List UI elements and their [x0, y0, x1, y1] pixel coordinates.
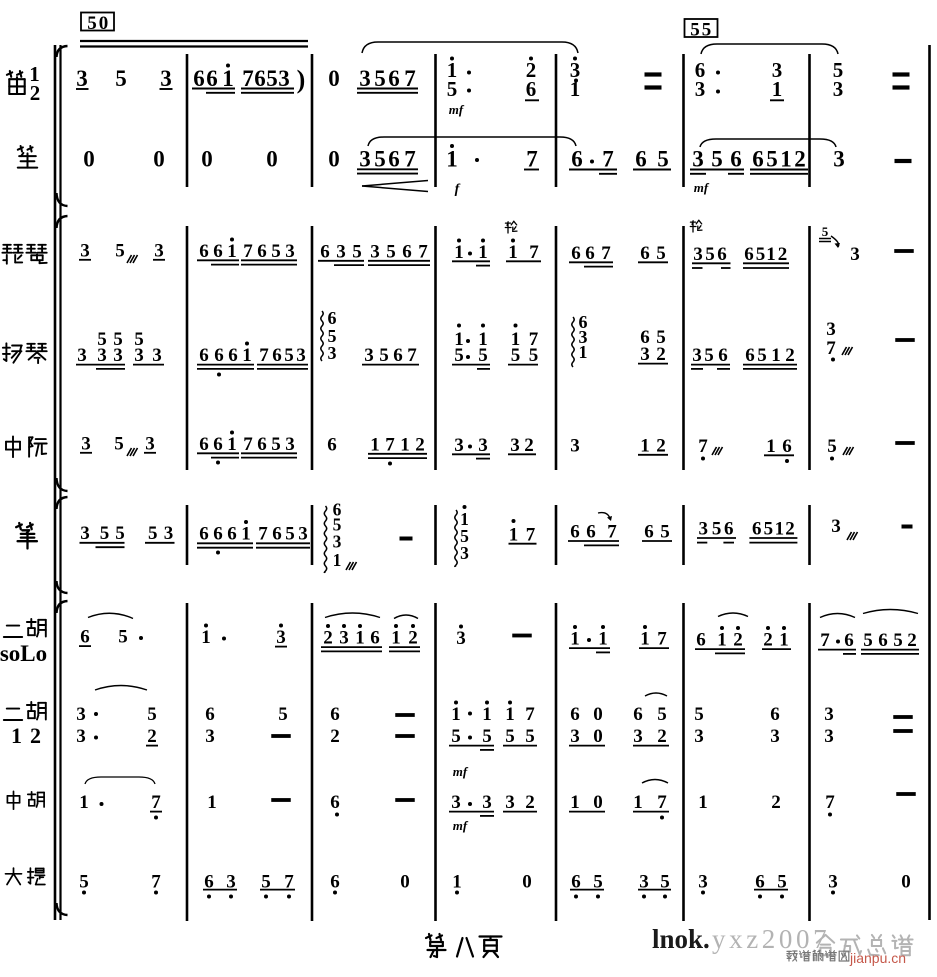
- svg-text:6: 6: [586, 522, 596, 543]
- svg-text:2: 2: [525, 792, 535, 813]
- svg-text:5: 5: [115, 66, 127, 91]
- svg-text:7: 7: [259, 345, 269, 366]
- svg-text:1: 1: [333, 550, 342, 570]
- svg-text:3: 3: [694, 726, 704, 747]
- svg-text:5: 5: [757, 345, 767, 366]
- svg-text:1: 1: [579, 342, 588, 362]
- svg-text:1: 1: [505, 704, 515, 725]
- svg-text:soLo: soLo: [0, 641, 47, 666]
- svg-text:3: 3: [826, 319, 836, 340]
- svg-text:6: 6: [782, 436, 792, 457]
- svg-text:6: 6: [80, 627, 90, 648]
- svg-text:6: 6: [388, 66, 400, 91]
- svg-text:5: 5: [822, 224, 829, 239]
- svg-text:6: 6: [571, 243, 581, 264]
- svg-text:6: 6: [570, 522, 580, 543]
- svg-text:3: 3: [451, 792, 461, 813]
- svg-text:2: 2: [794, 147, 806, 172]
- svg-text:3: 3: [693, 244, 703, 265]
- svg-text:3: 3: [76, 726, 86, 747]
- svg-text:6: 6: [213, 434, 223, 455]
- svg-text:6: 6: [199, 524, 209, 545]
- svg-text:0: 0: [266, 147, 278, 172]
- svg-text:3: 3: [76, 66, 88, 91]
- svg-text:3: 3: [298, 524, 308, 545]
- svg-text:6: 6: [199, 434, 209, 455]
- svg-text:6: 6: [770, 704, 780, 725]
- svg-text:5: 5: [756, 244, 766, 265]
- svg-text:2: 2: [408, 628, 418, 649]
- svg-text:6: 6: [330, 704, 340, 725]
- svg-text:2: 2: [763, 630, 773, 651]
- svg-text:6: 6: [402, 242, 412, 263]
- svg-text:5: 5: [374, 66, 386, 91]
- svg-text:7: 7: [526, 147, 538, 172]
- svg-text:7: 7: [385, 435, 395, 456]
- svg-text:6: 6: [696, 630, 706, 651]
- svg-text:7: 7: [407, 345, 417, 366]
- svg-text:5: 5: [379, 345, 389, 366]
- svg-text:7: 7: [526, 525, 536, 546]
- svg-text:6: 6: [227, 524, 237, 545]
- svg-text:0: 0: [593, 704, 603, 725]
- svg-text:5: 5: [266, 66, 278, 91]
- svg-text:3: 3: [454, 435, 464, 456]
- svg-text:5: 5: [656, 243, 666, 264]
- svg-text:1: 1: [509, 525, 519, 546]
- svg-text:6: 6: [214, 345, 224, 366]
- svg-text:6: 6: [752, 519, 762, 540]
- svg-text:lnok.: lnok.: [652, 924, 710, 954]
- svg-text:6: 6: [330, 872, 340, 893]
- svg-text:3: 3: [456, 628, 466, 649]
- svg-text:5: 5: [374, 147, 386, 172]
- svg-text:3: 3: [770, 726, 780, 747]
- svg-text:mf: mf: [694, 180, 710, 195]
- svg-text:6: 6: [370, 628, 380, 649]
- svg-text:3: 3: [285, 241, 295, 262]
- svg-text:5: 5: [827, 436, 837, 457]
- svg-text:3: 3: [278, 66, 290, 91]
- svg-text:1: 1: [640, 436, 650, 457]
- svg-text:3: 3: [359, 147, 371, 172]
- svg-text:3: 3: [478, 435, 488, 456]
- svg-text:6: 6: [752, 147, 764, 172]
- svg-text:1: 1: [201, 627, 211, 648]
- svg-text:3: 3: [570, 726, 580, 747]
- svg-text:3: 3: [828, 872, 838, 893]
- svg-text:5: 5: [511, 345, 521, 366]
- svg-text:5: 5: [79, 872, 89, 893]
- svg-text:7: 7: [698, 436, 708, 457]
- svg-text:6: 6: [320, 242, 330, 263]
- svg-text:6: 6: [730, 147, 742, 172]
- svg-text:5: 5: [451, 726, 461, 747]
- svg-text:7: 7: [151, 872, 161, 893]
- svg-text:1: 1: [570, 629, 580, 650]
- svg-text:5: 5: [529, 345, 539, 366]
- svg-text:1: 1: [207, 792, 217, 813]
- svg-text:1: 1: [508, 242, 518, 263]
- svg-text:7: 7: [529, 242, 539, 263]
- svg-text:0: 0: [201, 147, 213, 172]
- svg-text:5: 5: [705, 244, 715, 265]
- svg-text:3: 3: [510, 435, 520, 456]
- svg-text:5: 5: [87, 13, 97, 34]
- svg-text:3: 3: [333, 532, 342, 552]
- svg-text:3: 3: [640, 344, 650, 365]
- svg-text:1: 1: [451, 704, 461, 725]
- svg-text:3: 3: [80, 240, 90, 261]
- svg-text:5: 5: [271, 434, 281, 455]
- svg-text:6: 6: [328, 308, 337, 328]
- svg-text:3: 3: [824, 726, 834, 747]
- svg-text:5: 5: [690, 20, 700, 41]
- svg-text:3: 3: [154, 240, 164, 261]
- svg-text:7: 7: [601, 243, 611, 264]
- svg-text:6: 6: [205, 704, 215, 725]
- svg-text:6: 6: [199, 345, 209, 366]
- svg-text:2: 2: [30, 723, 41, 748]
- svg-text:3: 3: [164, 523, 174, 544]
- svg-text:5: 5: [657, 704, 667, 725]
- svg-text:mf: mf: [453, 764, 469, 779]
- svg-text:3: 3: [336, 242, 346, 263]
- svg-text:5: 5: [704, 345, 714, 366]
- svg-text:6: 6: [272, 345, 282, 366]
- svg-text:3: 3: [359, 66, 371, 91]
- svg-text:7: 7: [825, 792, 835, 813]
- svg-text:0: 0: [522, 872, 532, 893]
- svg-text:5: 5: [702, 20, 712, 41]
- svg-text:0: 0: [400, 872, 410, 893]
- svg-text:1: 1: [242, 345, 252, 366]
- svg-text:6: 6: [254, 66, 266, 91]
- svg-text:1: 1: [766, 244, 776, 265]
- svg-text:2: 2: [656, 344, 666, 365]
- svg-text:3: 3: [482, 792, 492, 813]
- svg-text:3: 3: [80, 523, 90, 544]
- svg-text:3: 3: [339, 628, 349, 649]
- svg-text:6: 6: [718, 345, 728, 366]
- svg-text:7: 7: [404, 66, 416, 91]
- svg-text:7: 7: [151, 792, 161, 813]
- svg-text:1: 1: [640, 629, 650, 650]
- svg-text:7: 7: [820, 630, 830, 651]
- svg-text:6: 6: [206, 66, 218, 91]
- svg-text:5: 5: [454, 345, 464, 366]
- svg-text:1: 1: [79, 792, 89, 813]
- svg-text:7: 7: [607, 522, 617, 543]
- svg-text:5: 5: [863, 630, 873, 651]
- svg-text:1: 1: [452, 872, 462, 893]
- svg-text:7: 7: [404, 147, 416, 172]
- svg-text:6: 6: [745, 345, 755, 366]
- svg-text:2: 2: [30, 81, 41, 105]
- svg-text:5: 5: [766, 147, 778, 172]
- svg-text:6: 6: [388, 147, 400, 172]
- svg-text:6: 6: [640, 243, 650, 264]
- svg-text:7: 7: [258, 524, 268, 545]
- svg-text:6: 6: [330, 792, 340, 813]
- svg-text:6: 6: [199, 241, 209, 262]
- svg-text:1: 1: [355, 628, 365, 649]
- svg-text:7: 7: [657, 629, 667, 650]
- svg-text:5: 5: [118, 627, 128, 648]
- svg-text:6: 6: [257, 434, 267, 455]
- svg-text:1: 1: [698, 792, 708, 813]
- svg-text:5: 5: [114, 434, 124, 455]
- svg-text:6: 6: [744, 244, 754, 265]
- svg-text:5: 5: [657, 147, 669, 172]
- svg-text:3: 3: [695, 77, 706, 101]
- svg-text:6: 6: [844, 630, 854, 651]
- svg-text:2: 2: [330, 726, 340, 747]
- svg-text:6: 6: [393, 345, 403, 366]
- svg-text:7: 7: [657, 792, 667, 813]
- svg-text:3: 3: [152, 345, 162, 366]
- svg-text:3: 3: [296, 345, 306, 366]
- svg-text:5: 5: [271, 241, 281, 262]
- svg-text:6: 6: [717, 244, 727, 265]
- svg-text:1: 1: [11, 723, 22, 748]
- svg-text:0: 0: [83, 147, 95, 172]
- svg-text:6: 6: [635, 147, 647, 172]
- svg-text:2: 2: [778, 244, 788, 265]
- svg-text:6: 6: [257, 241, 267, 262]
- svg-text:0: 0: [328, 66, 340, 91]
- svg-text:1: 1: [482, 704, 492, 725]
- svg-text:2: 2: [771, 792, 781, 813]
- svg-text:1: 1: [771, 345, 781, 366]
- svg-text:3: 3: [364, 345, 374, 366]
- svg-text:3: 3: [145, 434, 155, 455]
- svg-text:3: 3: [205, 726, 215, 747]
- svg-text:1: 1: [780, 147, 792, 172]
- svg-text:1: 1: [241, 524, 251, 545]
- svg-text:7: 7: [826, 338, 836, 359]
- svg-text:5: 5: [893, 630, 903, 651]
- svg-text:1: 1: [633, 792, 643, 813]
- svg-text:7: 7: [602, 147, 614, 172]
- svg-text:mf: mf: [453, 818, 469, 833]
- svg-text:0: 0: [328, 147, 340, 172]
- svg-text:2: 2: [415, 435, 425, 456]
- svg-text:1: 1: [779, 630, 789, 651]
- svg-text:6: 6: [878, 630, 888, 651]
- svg-text:7: 7: [418, 242, 428, 263]
- svg-text:2: 2: [524, 435, 534, 456]
- svg-text:5: 5: [712, 519, 722, 540]
- svg-text:5: 5: [764, 519, 774, 540]
- svg-text:5: 5: [660, 522, 670, 543]
- svg-text:3: 3: [699, 519, 709, 540]
- svg-text:3: 3: [692, 345, 702, 366]
- svg-text:1: 1: [775, 519, 785, 540]
- svg-text:1: 1: [772, 77, 783, 101]
- svg-text:5: 5: [478, 345, 488, 366]
- svg-text:5: 5: [505, 726, 515, 747]
- svg-text:6: 6: [228, 345, 238, 366]
- svg-text:jianpu.cn: jianpu.cn: [849, 950, 906, 966]
- svg-text:3: 3: [76, 704, 86, 725]
- svg-text:5: 5: [148, 523, 158, 544]
- svg-text:0: 0: [153, 147, 165, 172]
- svg-text:6: 6: [327, 435, 337, 456]
- svg-text:5: 5: [711, 147, 723, 172]
- svg-text:6: 6: [585, 243, 595, 264]
- svg-text:1: 1: [222, 66, 234, 91]
- svg-text:): ): [297, 65, 306, 94]
- svg-text:2: 2: [657, 726, 667, 747]
- svg-text:3: 3: [113, 345, 123, 366]
- svg-text:1: 1: [400, 435, 410, 456]
- svg-text:5: 5: [352, 242, 362, 263]
- svg-text:5: 5: [694, 704, 704, 725]
- svg-text:5: 5: [147, 704, 157, 725]
- svg-text:3: 3: [698, 872, 708, 893]
- svg-text:yxz2007: yxz2007: [712, 924, 830, 954]
- svg-text:1: 1: [446, 147, 458, 172]
- svg-text:5: 5: [284, 345, 294, 366]
- svg-text:1: 1: [370, 435, 380, 456]
- svg-text:3: 3: [77, 345, 87, 366]
- svg-text:3: 3: [824, 704, 834, 725]
- svg-text:1: 1: [598, 629, 608, 650]
- svg-text:6: 6: [633, 704, 643, 725]
- svg-text:6: 6: [213, 524, 223, 545]
- svg-text:0: 0: [901, 872, 911, 893]
- svg-text:2: 2: [785, 345, 795, 366]
- svg-text:3: 3: [276, 627, 286, 648]
- svg-text:3: 3: [81, 434, 91, 455]
- svg-text:1: 1: [454, 242, 464, 263]
- svg-text:5: 5: [447, 77, 458, 101]
- svg-text:6: 6: [526, 77, 537, 101]
- svg-text:1: 1: [766, 436, 776, 457]
- svg-text:3: 3: [285, 434, 295, 455]
- svg-text:3: 3: [505, 792, 515, 813]
- svg-text:7: 7: [243, 434, 253, 455]
- svg-text:7: 7: [242, 66, 254, 91]
- svg-text:3: 3: [833, 77, 844, 101]
- svg-text:5: 5: [100, 523, 110, 544]
- svg-text:1: 1: [570, 792, 580, 813]
- svg-text:6: 6: [213, 241, 223, 262]
- svg-text:0: 0: [99, 13, 109, 34]
- svg-text:2: 2: [907, 630, 917, 651]
- svg-text:1: 1: [227, 241, 237, 262]
- svg-text:3: 3: [370, 242, 380, 263]
- svg-text:1: 1: [717, 630, 727, 651]
- svg-text:5: 5: [115, 240, 125, 261]
- svg-text:0: 0: [593, 726, 603, 747]
- svg-text:0: 0: [593, 792, 603, 813]
- svg-text:3: 3: [570, 436, 580, 457]
- svg-text:5: 5: [386, 242, 396, 263]
- svg-text:3: 3: [160, 66, 172, 91]
- svg-text:1: 1: [391, 628, 401, 649]
- svg-text:mf: mf: [449, 102, 465, 117]
- svg-text:2: 2: [785, 519, 795, 540]
- svg-text:7: 7: [525, 704, 535, 725]
- svg-text:2: 2: [733, 630, 743, 651]
- svg-text:3: 3: [97, 345, 107, 366]
- svg-text:3: 3: [833, 147, 845, 172]
- svg-text:2: 2: [323, 628, 333, 649]
- svg-text:3: 3: [460, 543, 469, 563]
- svg-text:5: 5: [278, 704, 288, 725]
- svg-text:2: 2: [147, 726, 157, 747]
- svg-text:5: 5: [482, 726, 492, 747]
- svg-text:5: 5: [525, 726, 535, 747]
- svg-text:7: 7: [243, 241, 253, 262]
- svg-text:3: 3: [850, 244, 860, 265]
- svg-text:3: 3: [831, 516, 841, 537]
- svg-text:2: 2: [656, 436, 666, 457]
- svg-text:6: 6: [644, 522, 654, 543]
- svg-text:5: 5: [285, 524, 295, 545]
- svg-text:6: 6: [570, 704, 580, 725]
- svg-text:3: 3: [328, 343, 337, 363]
- svg-text:6: 6: [272, 524, 282, 545]
- svg-text:5: 5: [115, 523, 125, 544]
- svg-text:6: 6: [193, 66, 205, 91]
- svg-text:6: 6: [571, 147, 583, 172]
- svg-text:3: 3: [633, 726, 643, 747]
- svg-text:1: 1: [227, 434, 237, 455]
- svg-text:1: 1: [478, 242, 488, 263]
- svg-text:3: 3: [692, 147, 704, 172]
- svg-text:6: 6: [724, 519, 734, 540]
- svg-text:3: 3: [134, 345, 144, 366]
